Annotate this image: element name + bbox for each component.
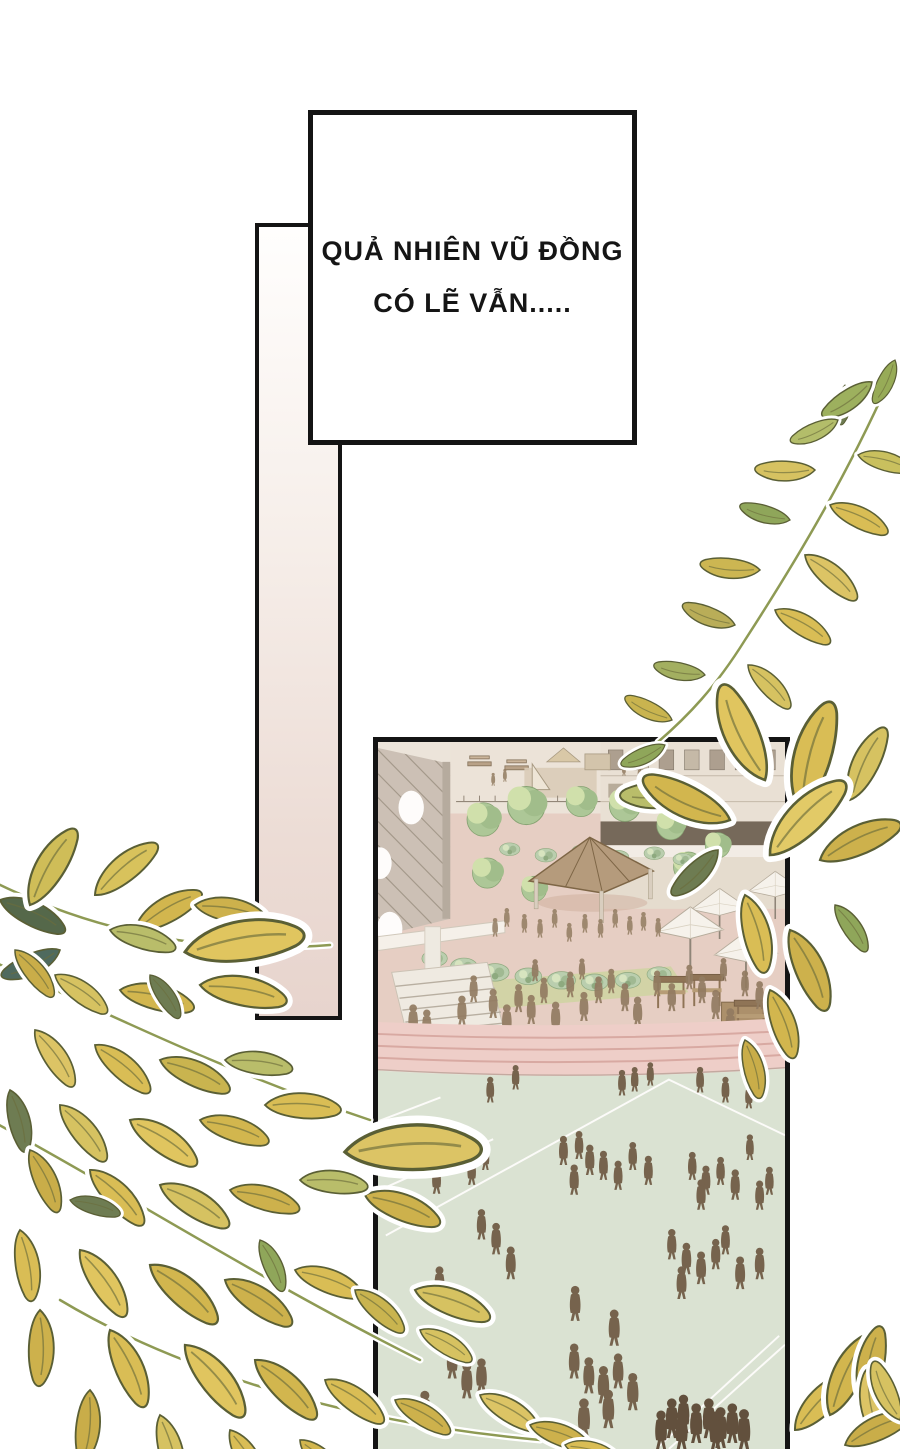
speech-box: QUẢ NHIÊN VŨ ĐỒNG CÓ LẼ VẪN..... <box>308 110 637 445</box>
speech-line-1: QUẢ NHIÊN VŨ ĐỒNG <box>321 226 623 277</box>
speech-line-2: CÓ LẼ VẪN..... <box>373 278 572 329</box>
courtyard-scene-illustration <box>378 742 785 1449</box>
right-branch-leaves <box>618 357 900 771</box>
bottom-right-leaf-cluster <box>783 1323 900 1449</box>
courtyard-panel <box>373 737 790 1449</box>
comic-page: QUẢ NHIÊN VŨ ĐỒNG CÓ LẼ VẪN..... <box>0 0 900 1449</box>
